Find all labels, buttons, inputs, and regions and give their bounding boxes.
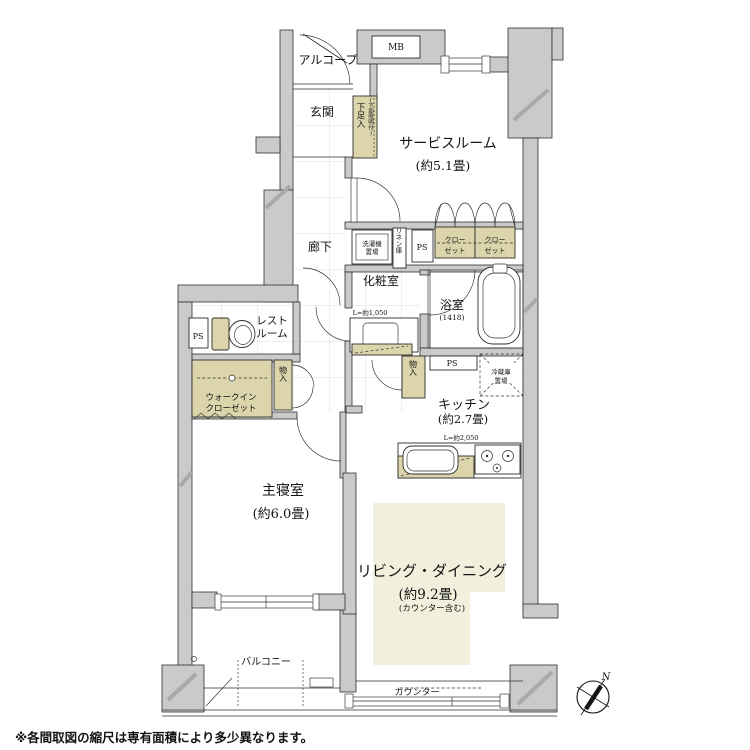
label-fridge-2: 置場 bbox=[495, 376, 509, 385]
wall-nook-corner bbox=[346, 406, 362, 413]
label-ps-3: PS bbox=[447, 359, 458, 368]
label-kitchen: キッチン bbox=[438, 398, 490, 413]
service-door-arc bbox=[357, 178, 400, 221]
kitchen-nook-floor bbox=[353, 355, 402, 412]
wall-column-notch bbox=[552, 28, 563, 60]
genkan-floor bbox=[293, 89, 353, 157]
label-shoe-note: (下部照明付) bbox=[368, 97, 374, 137]
wall-right bbox=[523, 138, 538, 612]
vanity-sink bbox=[363, 323, 398, 347]
label-powder: 化粧室 bbox=[363, 273, 399, 288]
toilet-bowl bbox=[229, 321, 255, 348]
label-bath-size: (1418) bbox=[440, 313, 465, 322]
wall-service-west bbox=[370, 64, 377, 98]
bedroom-door-arc bbox=[297, 417, 341, 461]
label-linen: リネン庫 bbox=[396, 227, 403, 255]
label-living-note: (カウンター含む) bbox=[399, 603, 465, 614]
label-alcove: アルコープ bbox=[299, 53, 358, 67]
wall-hall-east-1 bbox=[345, 157, 352, 178]
label-service-size: (約5.1畳) bbox=[416, 158, 471, 173]
label-wic-1: ウォークイン bbox=[205, 393, 256, 403]
label-closet2-line2: ゼット bbox=[485, 246, 506, 255]
compass-north-label: N bbox=[601, 672, 612, 683]
label-shoe-cabinet: 下足入 bbox=[357, 103, 366, 130]
wall-top-right-of-window bbox=[488, 57, 510, 72]
label-hall: 廊下 bbox=[308, 239, 332, 254]
bedroom-window bbox=[215, 594, 319, 610]
label-kitchen-dim: L=約2,050 bbox=[444, 433, 479, 442]
wall-bath-south bbox=[420, 348, 523, 356]
wall-left-stub bbox=[256, 137, 280, 153]
label-service-room: サービスルーム bbox=[399, 136, 497, 152]
wall-bedroom-east bbox=[343, 473, 356, 614]
wall-restroom-top bbox=[178, 285, 298, 302]
label-mb: MB bbox=[388, 43, 404, 53]
bath-faucet bbox=[493, 264, 507, 273]
label-washer-1: 洗濯機 bbox=[362, 239, 382, 248]
label-balcony: バルコニー bbox=[241, 656, 291, 668]
label-bedroom: 主寝室 bbox=[262, 482, 304, 499]
label-storage-kitchen: 物入 bbox=[409, 359, 417, 377]
footnote: ※各間取図の縮尺は専有面積により多少異なります。 bbox=[15, 730, 313, 745]
living-dining-highlight bbox=[373, 503, 505, 665]
label-bath: 浴室 bbox=[440, 297, 464, 312]
label-genkan: 玄関 bbox=[310, 104, 334, 119]
wall-bath-west bbox=[420, 314, 430, 348]
label-ps-1: PS bbox=[417, 243, 428, 252]
stove bbox=[475, 445, 520, 474]
wall-bath-west-stub bbox=[420, 270, 430, 275]
label-living: リビング・ダイニング bbox=[357, 562, 507, 580]
wall-restroom-east bbox=[293, 302, 300, 354]
toilet-tank bbox=[212, 318, 229, 350]
label-kitchen-size: (約2.7畳) bbox=[438, 412, 488, 426]
label-ps-2: PS bbox=[193, 332, 204, 341]
label-closet1-line1: クロー bbox=[445, 236, 466, 244]
balcony-drain bbox=[206, 678, 232, 706]
floorplan-page: アルコープ MB 玄関 下足入 (下部照明付) サービスルーム (約5.1畳) … bbox=[0, 0, 750, 750]
service-room-window bbox=[441, 56, 490, 73]
kitchen-counter bbox=[398, 443, 521, 478]
wall-bedroom-south-left bbox=[192, 592, 217, 608]
wall-left-lower bbox=[178, 302, 192, 708]
wall-bedroom-south-right bbox=[317, 594, 345, 610]
label-closet1-line2: ゼット bbox=[445, 246, 466, 255]
hall-floor bbox=[293, 157, 345, 412]
service-door-leaf bbox=[351, 178, 357, 222]
label-vanity-dim: L=約1,050 bbox=[353, 308, 388, 317]
balcony-details bbox=[162, 657, 557, 717]
wall-bedroom-door-jamb bbox=[340, 412, 346, 478]
label-restroom-1: レスト bbox=[256, 315, 288, 327]
label-closet2-line1: クロー bbox=[485, 236, 506, 244]
compass-needle bbox=[586, 686, 601, 709]
label-restroom-2: ルーム bbox=[256, 328, 287, 340]
label-washer-2: 置場 bbox=[366, 247, 380, 256]
compass: N bbox=[577, 672, 612, 715]
wall-living-west-stub bbox=[340, 610, 356, 692]
label-storage-hall: 物入 bbox=[279, 365, 287, 383]
label-counter: カウンター bbox=[394, 687, 439, 698]
wall-left-upper bbox=[280, 30, 293, 190]
label-fridge-1: 冷蔵庫 bbox=[491, 367, 511, 376]
wall-column-top-right bbox=[508, 28, 552, 138]
floorplan-svg: アルコープ MB 玄関 下足入 (下部照明付) サービスルーム (約5.1畳) … bbox=[0, 0, 750, 750]
label-wic-2: クローゼット bbox=[205, 403, 256, 414]
wall-right-step bbox=[523, 604, 558, 618]
wall-hall-east-2 bbox=[345, 272, 352, 308]
label-living-size: (約9.2畳) bbox=[398, 587, 457, 603]
label-bedroom-size: (約6.0畳) bbox=[253, 507, 310, 522]
